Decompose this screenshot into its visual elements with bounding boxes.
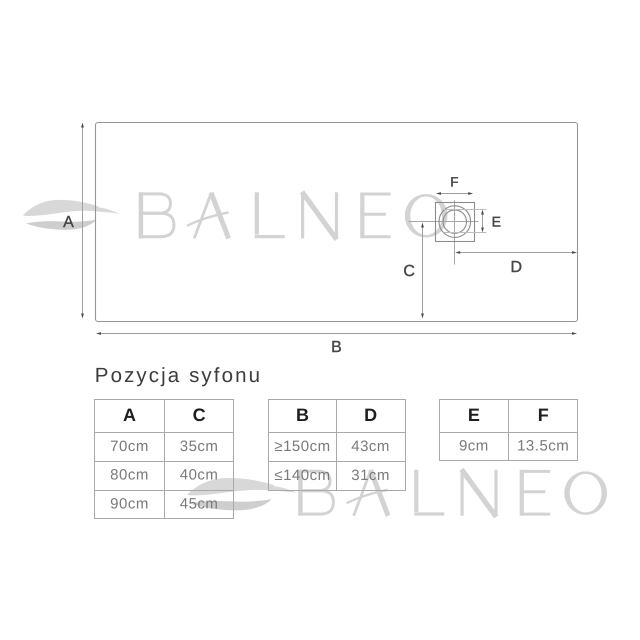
svg-text:40cm: 40cm	[180, 467, 219, 484]
svg-text:Pozycja syfonu: Pozycja syfonu	[95, 364, 262, 387]
svg-text:35cm: 35cm	[180, 438, 219, 455]
svg-text:B: B	[331, 339, 342, 356]
svg-text:C: C	[403, 263, 415, 280]
svg-text:≤140cm: ≤140cm	[274, 467, 330, 484]
svg-text:13.5cm: 13.5cm	[517, 437, 569, 454]
svg-text:9cm: 9cm	[459, 437, 489, 454]
svg-text:F: F	[538, 405, 549, 425]
svg-text:90cm: 90cm	[110, 495, 149, 512]
svg-text:A: A	[123, 405, 136, 425]
svg-text:D: D	[364, 405, 377, 425]
svg-text:E: E	[492, 213, 501, 229]
svg-text:≥150cm: ≥150cm	[274, 438, 330, 455]
svg-text:B: B	[296, 405, 309, 425]
svg-text:D: D	[511, 259, 523, 276]
svg-text:F: F	[450, 174, 458, 189]
svg-text:C: C	[193, 405, 206, 425]
svg-text:45cm: 45cm	[180, 495, 219, 512]
svg-text:80cm: 80cm	[110, 467, 149, 484]
svg-text:70cm: 70cm	[110, 438, 149, 455]
svg-text:E: E	[468, 405, 480, 425]
svg-text:43cm: 43cm	[351, 438, 390, 455]
svg-text:31cm: 31cm	[351, 467, 390, 484]
svg-text:A: A	[63, 214, 74, 231]
